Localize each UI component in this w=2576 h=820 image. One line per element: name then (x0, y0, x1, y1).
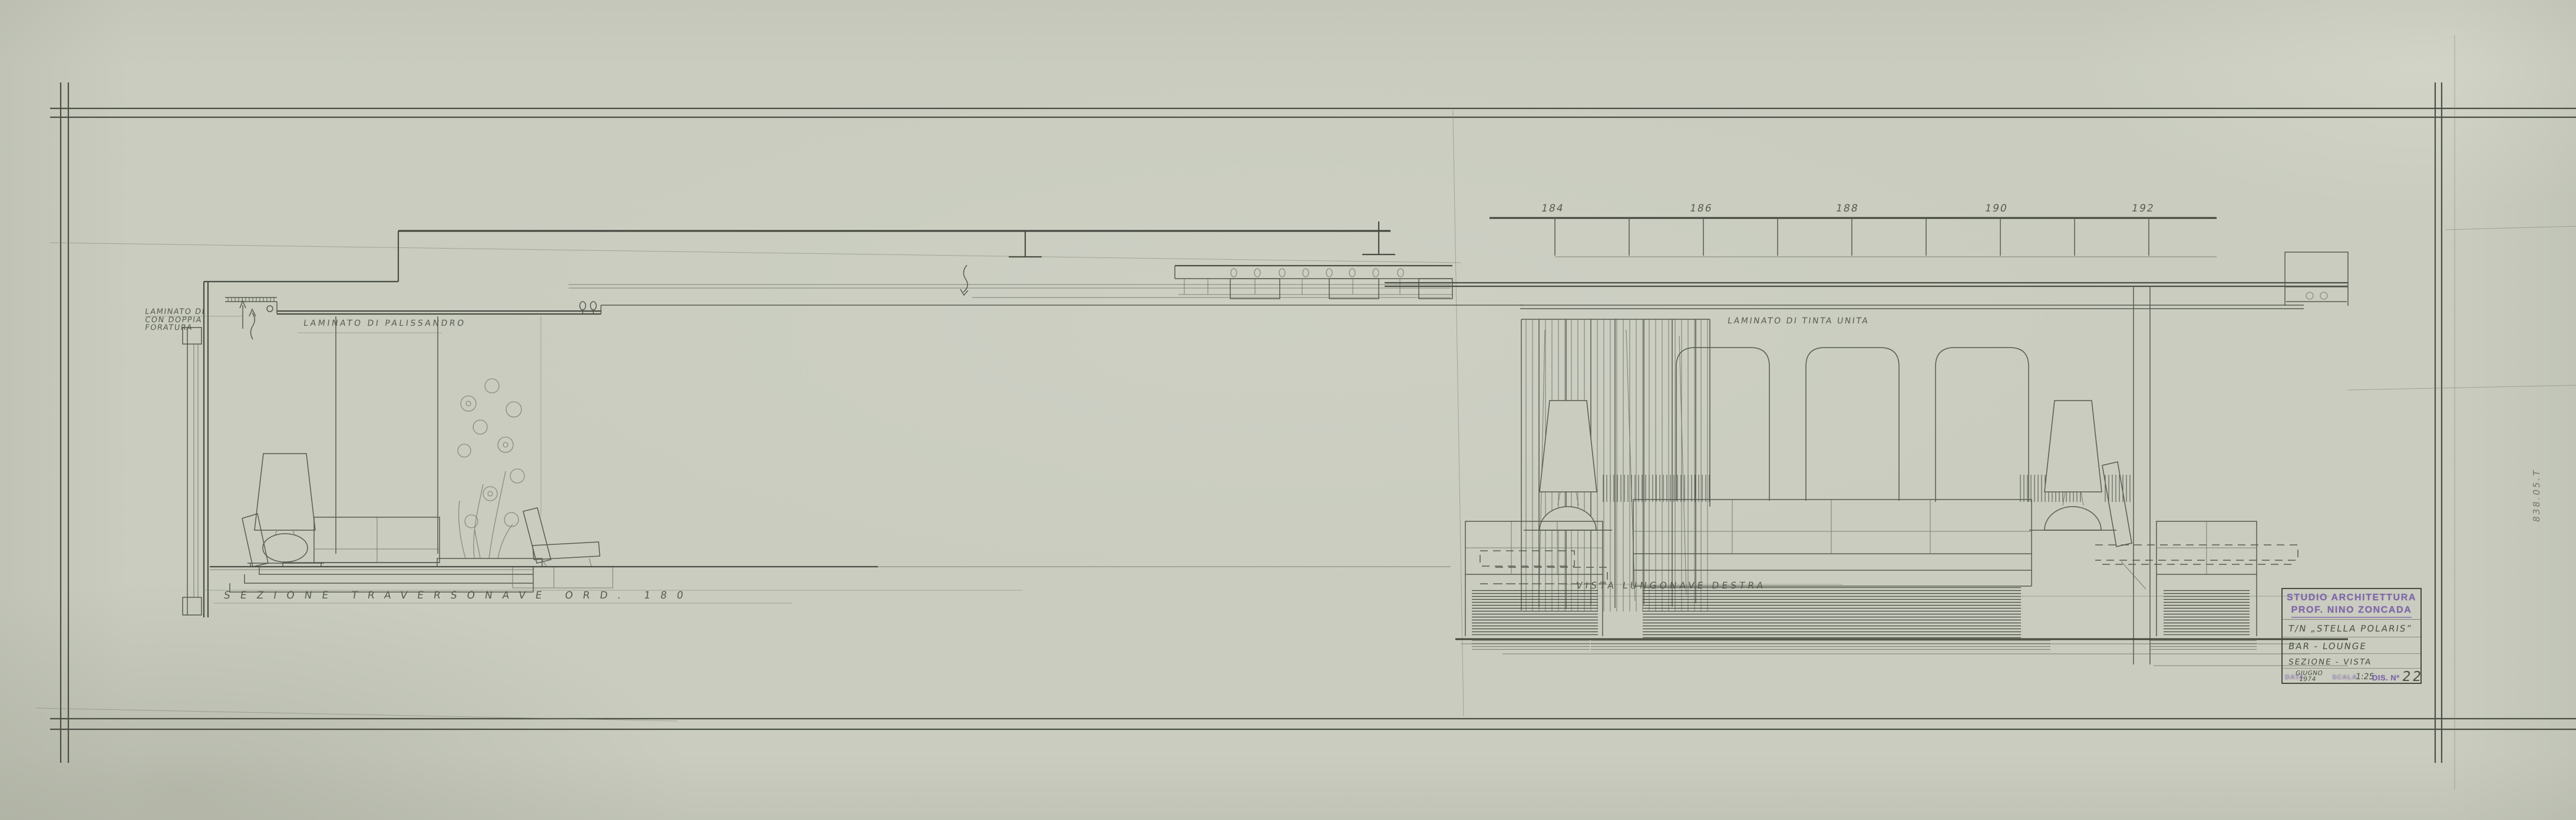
annotation-text: LAMINATO DI TINTA UNITA (1727, 316, 1870, 326)
frame-number-text: 186 (1689, 203, 1714, 214)
room-name: BAR - LOUNGE (2288, 641, 2367, 652)
frame-number-text: 192 (2131, 203, 2156, 214)
elevation-linework (1385, 218, 2348, 666)
elevation-caption: VISTA LUNGONAVE DESTRA (1576, 580, 1766, 591)
cross-section-linework (145, 282, 1451, 617)
frame-number-text: 190 (1984, 203, 2009, 214)
frame-number-text: 184 (1540, 203, 1566, 214)
date-year: 1974 (2298, 677, 2316, 683)
caption-text: SEZIONE TRAVERSONAVE ORD. 180 (223, 590, 694, 601)
annotation-rosewood-laminate: LAMINATO DI PALISSANDRO (303, 319, 465, 328)
annotation-line: FORATURA (144, 324, 193, 332)
frame-number-190: 190 (1979, 203, 2014, 214)
sheet-content-row: SEZIONE - VISTA (2283, 654, 2420, 669)
title-block: STUDIO ARCHITETTURA PROF. NINO ZONCADA T… (2281, 588, 2422, 684)
frame-number-186: 186 (1683, 203, 1719, 214)
margin-archive-number: 838.05.T (2531, 458, 2544, 533)
ceiling-deck-linework (204, 221, 1523, 314)
drawing-linework (0, 0, 2576, 820)
sheet-content: SEZIONE - VISTA (2288, 657, 2373, 667)
drawing-number-label: DIS. Nº (2372, 673, 2400, 682)
sheet-border-frame (50, 35, 2576, 789)
title-block-bottom-row: DATA GIUGNO 1974 SCALA 1:25 DIS. Nº 22 (2283, 669, 2420, 687)
annotation-solid-colour-laminate: LAMINATO DI TINTA UNITA (1728, 316, 1869, 326)
drawing-number-value: 22 (2402, 669, 2423, 685)
annotation-line: CON DOPPIA (144, 316, 203, 325)
ship-name: T/N „STELLA POLARIS” (2288, 623, 2413, 634)
caption-text: VISTA LUNGONAVE DESTRA (1576, 580, 1767, 591)
annotation-perforated-laminate: LAMINATO DI CON DOPPIA FORATURA (145, 308, 205, 332)
frame-number-184: 184 (1535, 203, 1570, 214)
room-name-row: BAR - LOUNGE (2283, 637, 2420, 654)
date-value: GIUGNO 1974 (2296, 671, 2323, 682)
plant-sketch (458, 379, 524, 558)
annotation-line: LAMINATO DI (144, 308, 206, 316)
scale-value: 1:25 (2356, 672, 2374, 682)
drawing-number-text: 22 (2401, 669, 2424, 685)
archive-number-text: 838.05.T (2531, 468, 2542, 523)
architect-name: PROF. NINO ZONCADA (2291, 604, 2412, 618)
annotation-text: LAMINATO DI PALISSANDRO (303, 319, 467, 328)
cross-section-caption: SEZIONE TRAVERSONAVE ORD. 180 (224, 590, 693, 601)
studio-name: STUDIO ARCHITETTURA (2283, 592, 2420, 604)
frame-number-188: 188 (1829, 203, 1865, 214)
scale-stamp-label: SCALA (2332, 674, 2357, 681)
studio-stamp: STUDIO ARCHITETTURA PROF. NINO ZONCADA (2283, 589, 2420, 620)
ship-name-row: T/N „STELLA POLARIS” (2283, 620, 2420, 637)
frame-number-192: 192 (2125, 203, 2161, 214)
frame-number-text: 188 (1835, 203, 1860, 214)
